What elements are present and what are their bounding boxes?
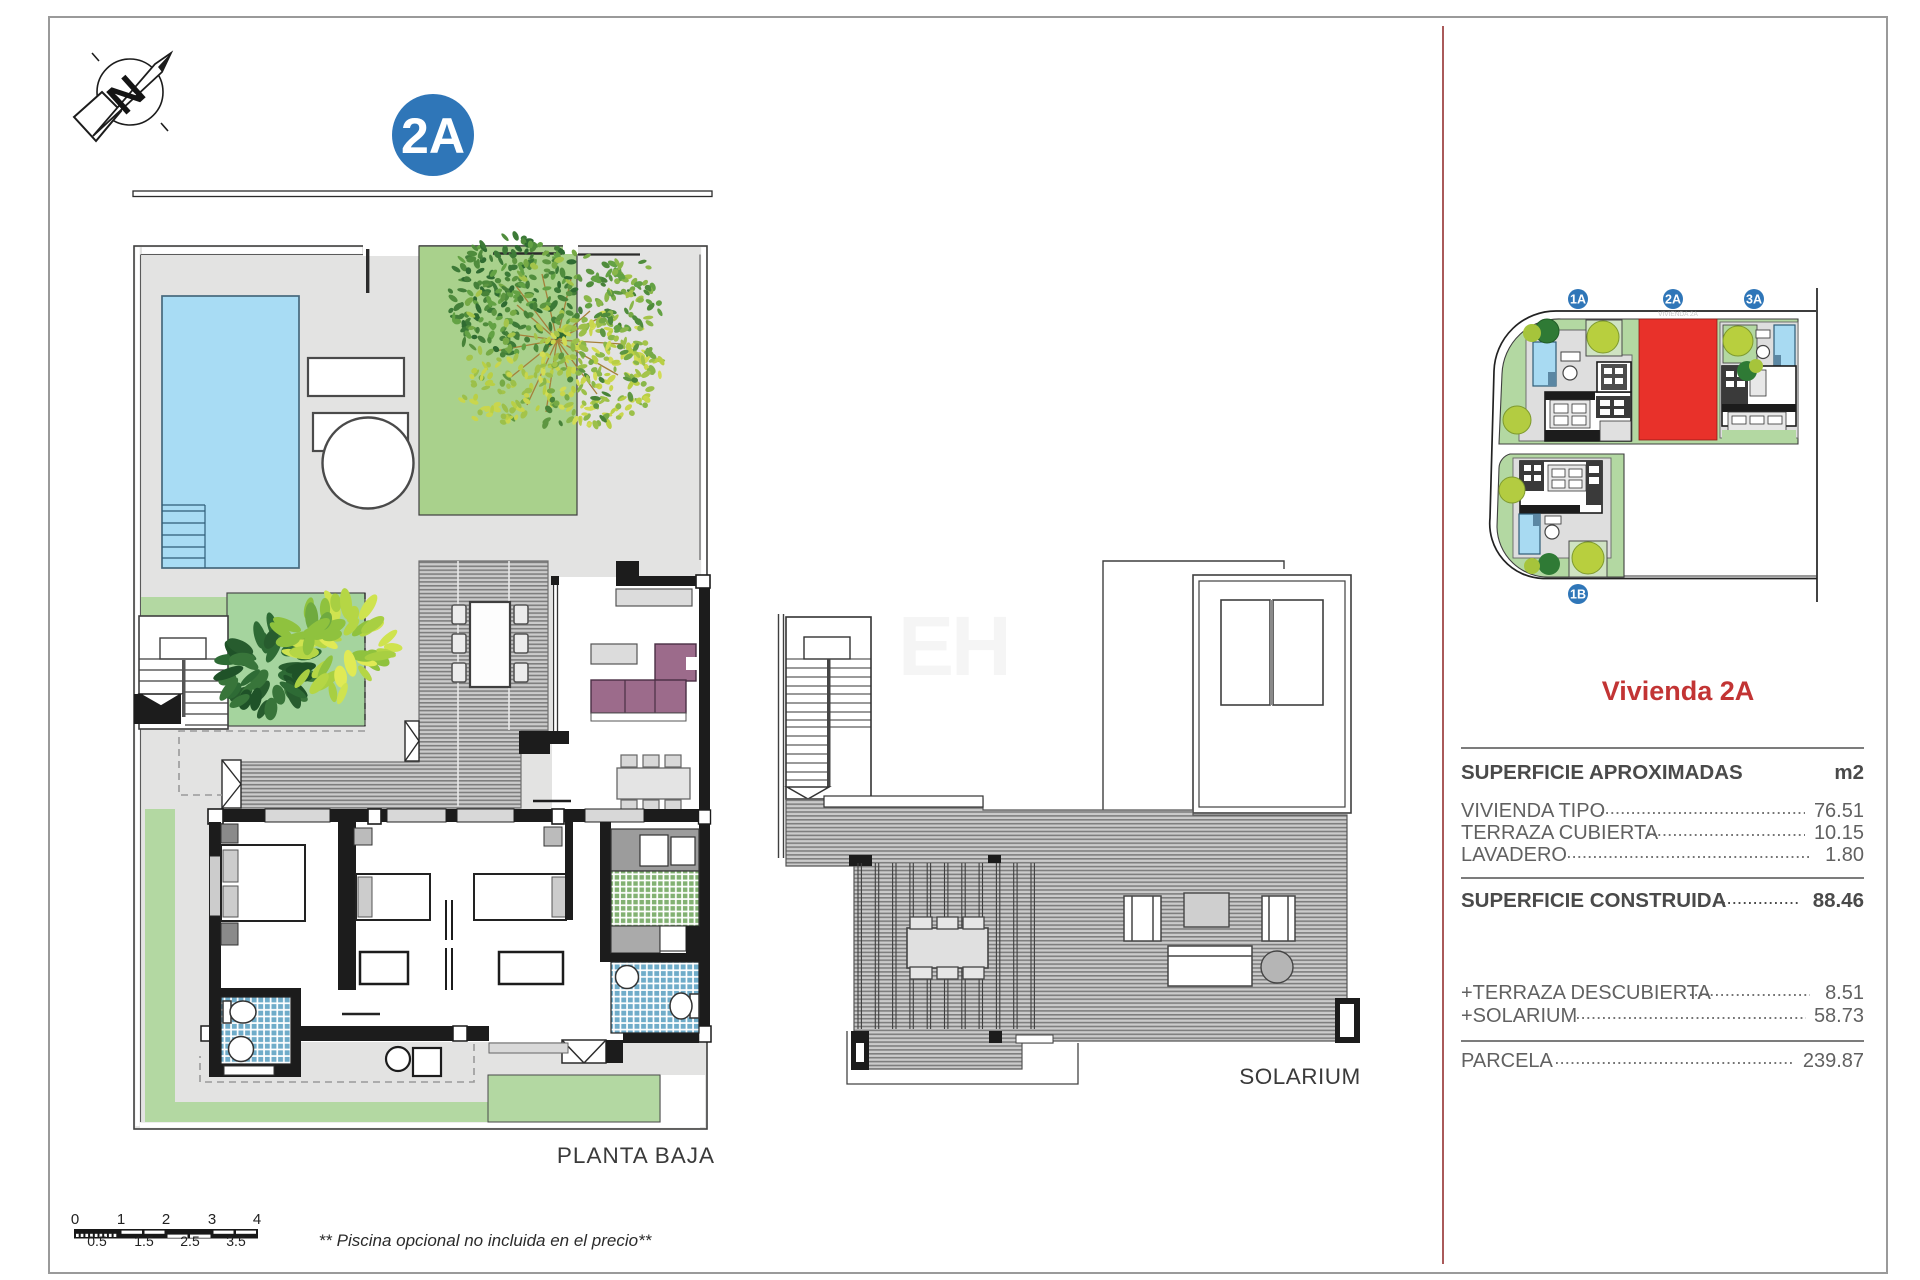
svg-text:76.51: 76.51: [1814, 800, 1864, 822]
svg-text:3.5: 3.5: [226, 1233, 246, 1249]
svg-text:PLANTA BAJA: PLANTA BAJA: [557, 1143, 715, 1168]
svg-text:3: 3: [208, 1211, 216, 1228]
svg-text:TERRAZA CUBIERTA: TERRAZA CUBIERTA: [1461, 822, 1659, 844]
svg-text:VIVIENDA TIPO: VIVIENDA TIPO: [1461, 800, 1605, 822]
svg-text:m2: m2: [1834, 761, 1864, 784]
svg-text:10.15: 10.15: [1814, 822, 1864, 844]
svg-text:VIVIENDA 2A: VIVIENDA 2A: [1658, 311, 1698, 318]
svg-text:58.73: 58.73: [1814, 1005, 1864, 1027]
svg-text:1: 1: [117, 1211, 125, 1228]
svg-text:4: 4: [253, 1211, 261, 1228]
svg-text:0: 0: [71, 1211, 79, 1228]
svg-text:+SOLARIUM: +SOLARIUM: [1461, 1005, 1577, 1027]
svg-text:2A: 2A: [1665, 293, 1681, 307]
svg-text:SUPERFICIE CONSTRUIDA: SUPERFICIE CONSTRUIDA: [1461, 889, 1727, 912]
svg-text:88.46: 88.46: [1813, 889, 1864, 912]
svg-text:1B: 1B: [1570, 588, 1586, 602]
svg-text:239.87: 239.87: [1803, 1050, 1864, 1072]
svg-text:PARCELA: PARCELA: [1461, 1050, 1554, 1072]
svg-text:Vivienda 2A: Vivienda 2A: [1602, 676, 1755, 706]
svg-text:1.5: 1.5: [134, 1233, 154, 1249]
svg-text:1.80: 1.80: [1825, 844, 1864, 866]
svg-text:** Piscina opcional no incluid: ** Piscina opcional no incluida en el pr…: [319, 1231, 653, 1250]
svg-text:+TERRAZA DESCUBIERTA: +TERRAZA DESCUBIERTA: [1461, 982, 1712, 1004]
svg-text:8.51: 8.51: [1825, 982, 1864, 1004]
svg-text:LAVADERO: LAVADERO: [1461, 844, 1567, 866]
svg-text:SUPERFICIE APROXIMADAS: SUPERFICIE APROXIMADAS: [1461, 761, 1743, 784]
svg-text:SOLARIUM: SOLARIUM: [1239, 1064, 1361, 1089]
svg-text:2A: 2A: [401, 108, 465, 164]
svg-text:3A: 3A: [1746, 293, 1762, 307]
svg-text:2.5: 2.5: [180, 1233, 200, 1249]
svg-text:EH: EH: [898, 599, 1009, 693]
svg-text:0.5: 0.5: [87, 1233, 107, 1249]
svg-text:2: 2: [162, 1211, 170, 1228]
svg-text:1A: 1A: [1570, 293, 1586, 307]
